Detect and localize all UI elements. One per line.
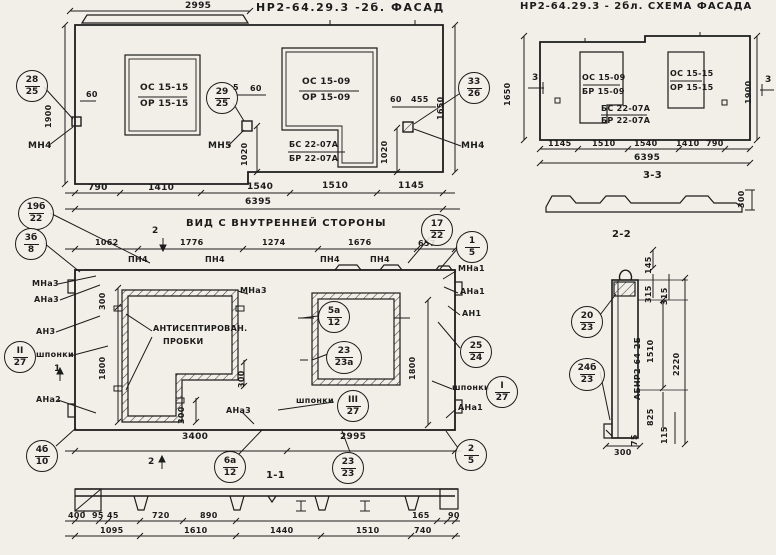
label-mna1-right: МНа1 <box>458 265 485 273</box>
dim-1410-s: 1410 <box>676 140 699 148</box>
dim-95: 95 <box>92 512 104 520</box>
dim-1900-scheme: 1900 <box>745 81 753 104</box>
dim-cap-2995: 2995 <box>185 2 211 11</box>
member-mark-abnr2: АБНР2-64-2Б <box>634 337 642 400</box>
callout-top: 24б <box>578 364 597 374</box>
callout-bottom: 23а <box>335 357 354 368</box>
dim-300-top: 300 <box>99 292 107 310</box>
callout-III-27: III 27 <box>337 390 369 422</box>
dim-720: 720 <box>152 512 170 520</box>
callout-bottom: 26 <box>467 88 482 99</box>
balcony-mark-bottom: БР 22-07А <box>289 155 338 163</box>
callout-5a-12: 5а 12 <box>318 301 350 333</box>
dim-1145-s: 1145 <box>548 140 571 148</box>
dim-1440: 1440 <box>270 527 293 535</box>
callout-bottom: 10 <box>35 456 50 467</box>
dim-6395-facade: 6395 <box>245 198 271 207</box>
callout-25-24: 25 24 <box>460 336 492 368</box>
label-an3-left: АН3 <box>36 328 55 336</box>
callout-24b-23: 24б 23 <box>569 358 605 391</box>
dim-45: 45 <box>107 512 119 520</box>
scheme-window2-top: ОС 15-15 <box>670 70 713 78</box>
callout-top: 25 <box>470 342 483 352</box>
callout-bottom: 5 <box>464 455 479 466</box>
dim-825: 825 <box>647 408 655 426</box>
dim-1510-s11: 1510 <box>356 527 379 535</box>
scheme-window2-bottom: ОР 15-15 <box>670 84 713 92</box>
callout-bottom: 25 <box>215 98 230 109</box>
callout-I-27: I 27 <box>486 376 518 408</box>
callout-top: II <box>17 347 24 357</box>
callout-top: 3б <box>25 234 38 244</box>
section-2-marker-bottom: 2 <box>148 458 155 467</box>
dim-1020-right: 1020 <box>381 141 389 164</box>
label-ana1-right: АНа1 <box>460 288 485 296</box>
dim-2995-inner: 2995 <box>340 433 366 442</box>
dim-145: 145 <box>645 256 653 274</box>
section-2-2-label: 2-2 <box>612 230 631 240</box>
label-pn4-1: ПН4 <box>128 256 148 264</box>
scheme-title: НР2-64.29.3 - 2бл. СХЕМА ФАСАДА <box>520 2 752 12</box>
dim-1900: 1900 <box>45 105 53 128</box>
callout-bottom: 23 <box>580 322 595 333</box>
inner-view-title: ВИД С ВНУТРЕННЕЙ СТОРОНЫ <box>186 219 387 229</box>
section-3-3-label: 3-3 <box>643 171 662 181</box>
dim-1410: 1410 <box>148 184 174 193</box>
anchor-mn4-left-label: МН4 <box>28 142 52 151</box>
scheme-window1-top: ОС 15-09 <box>582 74 625 82</box>
dim-1020-mid: 1020 <box>241 143 249 166</box>
dim-1540-s: 1540 <box>634 140 657 148</box>
window1-mark-bottom: ОР 15-15 <box>140 100 189 109</box>
callout-19b-22: 19б 22 <box>18 197 54 230</box>
dim-2220: 2220 <box>673 353 681 376</box>
scheme-window1-bottom: БР 15-09 <box>582 88 625 96</box>
label-ana1b-right: АНа1 <box>458 404 483 412</box>
anchor-mn5-label: МН5 <box>208 142 232 151</box>
dim-165: 165 <box>412 512 430 520</box>
callout-bottom: 24 <box>469 352 484 363</box>
callout-II-27: II 27 <box>4 341 36 373</box>
dim-1776: 1776 <box>180 239 203 247</box>
callout-top: 23 <box>338 347 351 357</box>
dim-1800-right: 1800 <box>409 357 417 380</box>
callout-bottom: 27 <box>346 406 361 417</box>
label-pn4-4: ПН4 <box>370 256 390 264</box>
callout-bottom: 27 <box>495 392 510 403</box>
callout-3b-8: 3б 8 <box>15 228 47 260</box>
dim-1650-scheme: 1650 <box>504 83 512 106</box>
callout-1-5: 1 5 <box>456 231 488 263</box>
callout-23-23a: 23 23а <box>326 341 362 374</box>
dim-1510-s22: 1510 <box>647 340 655 363</box>
label-mna3-mid: МНа3 <box>240 287 267 295</box>
callout-bottom: 5 <box>465 247 480 258</box>
dim-1274: 1274 <box>262 239 285 247</box>
callout-top: 1 <box>469 237 475 247</box>
callout-bottom: 22 <box>430 230 445 241</box>
section-1-1-label: 1-1 <box>266 471 285 481</box>
dim-5: 5 <box>233 84 239 92</box>
dim-1510: 1510 <box>322 182 348 191</box>
dim-1095: 1095 <box>100 527 123 535</box>
label-ana3-mid: АНа3 <box>226 407 251 415</box>
callout-4b-10: 4б 10 <box>26 440 58 472</box>
dim-790-s: 790 <box>706 140 724 148</box>
callout-bottom: 22 <box>29 213 44 224</box>
dim-315a: 315 <box>645 285 653 303</box>
dim-300-bottom: 300 <box>178 406 186 424</box>
callout-bottom: 8 <box>24 244 39 255</box>
label-shponki-right: шпонки <box>452 384 490 392</box>
dim-60-mid: 60 <box>250 85 262 93</box>
dim-300-profile: 300 <box>738 190 746 208</box>
dim-1610: 1610 <box>184 527 207 535</box>
callout-top: 2 <box>468 445 474 455</box>
label-plugs-line1: АНТИСЕПТИРОВАН. <box>153 325 247 333</box>
callout-top: 4б <box>36 446 49 456</box>
label-an1-right: АН1 <box>462 310 481 318</box>
window1-mark-top: ОС 15-15 <box>140 84 189 93</box>
dim-455: 455 <box>411 96 429 104</box>
label-pn4-2: ПН4 <box>205 256 225 264</box>
section-3-marker-right: 3 <box>765 76 772 85</box>
section-2-2-linework <box>600 247 688 449</box>
dim-740: 740 <box>414 527 432 535</box>
dim-6395-scheme: 6395 <box>634 154 660 163</box>
label-ana3-left: АНа3 <box>34 296 59 304</box>
dim-115: 115 <box>661 426 669 444</box>
blueprint-sheet: 2995 НР2-64.29.3 -2б. ФАСАД ОС 15-15 ОР … <box>0 0 776 555</box>
callout-23-23: 23 23 <box>332 452 364 484</box>
anchor-mn4-right-label: МН4 <box>461 142 485 151</box>
callout-20-23: 20 23 <box>571 306 603 338</box>
callout-bottom: 23 <box>580 374 595 385</box>
callout-33-26: 33 26 <box>458 72 490 104</box>
label-pn4-3: ПН4 <box>320 256 340 264</box>
dim-1676: 1676 <box>348 239 371 247</box>
callout-top: 28 <box>26 76 39 86</box>
section-1-marker-left: 1 <box>54 365 61 374</box>
dim-300-step: 300 <box>238 370 246 388</box>
callout-top: 6а <box>224 457 236 467</box>
callout-bottom: 25 <box>25 86 40 97</box>
dim-1800-left: 1800 <box>99 357 107 380</box>
section-3-marker-left: 3 <box>532 74 539 83</box>
callout-top: 17 <box>431 220 444 230</box>
callout-top: 29 <box>216 88 229 98</box>
balcony-mark-top: БС 22-07А <box>289 141 338 149</box>
dim-890: 890 <box>200 512 218 520</box>
inner-view-linework <box>44 213 462 469</box>
dim-1510-s: 1510 <box>592 140 615 148</box>
facade-title: НР2-64.29.3 -2б. ФАСАД <box>256 2 445 13</box>
callout-top: 33 <box>468 78 481 88</box>
callout-17-22: 17 22 <box>421 214 453 246</box>
dim-75: 75 <box>631 434 639 446</box>
dim-1540: 1540 <box>247 183 273 192</box>
callout-6a-12: 6а 12 <box>214 451 246 483</box>
label-ana2-left: АНа2 <box>36 396 61 404</box>
dim-90: 90 <box>448 512 460 520</box>
label-shponki-left: шпонки <box>36 351 74 359</box>
label-plugs-line2: ПРОБКИ <box>163 338 204 346</box>
scheme-balcony-top: БС 22-07А <box>601 105 650 113</box>
dim-1650-facade: 1650 <box>437 97 445 120</box>
dim-315b: 315 <box>661 287 669 305</box>
callout-top: 19б <box>27 203 46 213</box>
window2-mark-top: ОС 15-09 <box>302 78 351 87</box>
drawing-linework <box>0 0 776 555</box>
callout-top: I <box>500 382 503 392</box>
callout-2-5: 2 5 <box>455 439 487 471</box>
section-2-marker-top: 2 <box>152 227 159 236</box>
label-mna3-left: МНа3 <box>32 280 59 288</box>
window2-mark-bottom: ОР 15-09 <box>302 94 351 103</box>
callout-28-25: 28 25 <box>16 70 48 102</box>
callout-bottom: 23 <box>341 468 356 479</box>
callout-top: III <box>348 396 358 406</box>
dim-60-left: 60 <box>86 91 98 99</box>
dim-790: 790 <box>88 184 108 193</box>
dim-400: 400 <box>68 512 86 520</box>
dim-3400: 3400 <box>182 433 208 442</box>
dim-60-right: 60 <box>390 96 402 104</box>
callout-top: 5а <box>328 307 340 317</box>
section-1-1-linework <box>65 489 460 539</box>
dim-1145: 1145 <box>398 182 424 191</box>
callout-top: 20 <box>581 312 594 322</box>
dim-300-s22: 300 <box>614 449 632 457</box>
dim-1062: 1062 <box>95 239 118 247</box>
callout-top: 23 <box>342 458 355 468</box>
callout-bottom: 27 <box>13 357 28 368</box>
scheme-balcony-bottom: БР 22-07А <box>601 117 650 125</box>
label-shponki-mid: шпонки <box>296 397 334 405</box>
callout-bottom: 12 <box>327 317 342 328</box>
callout-bottom: 12 <box>223 467 238 478</box>
